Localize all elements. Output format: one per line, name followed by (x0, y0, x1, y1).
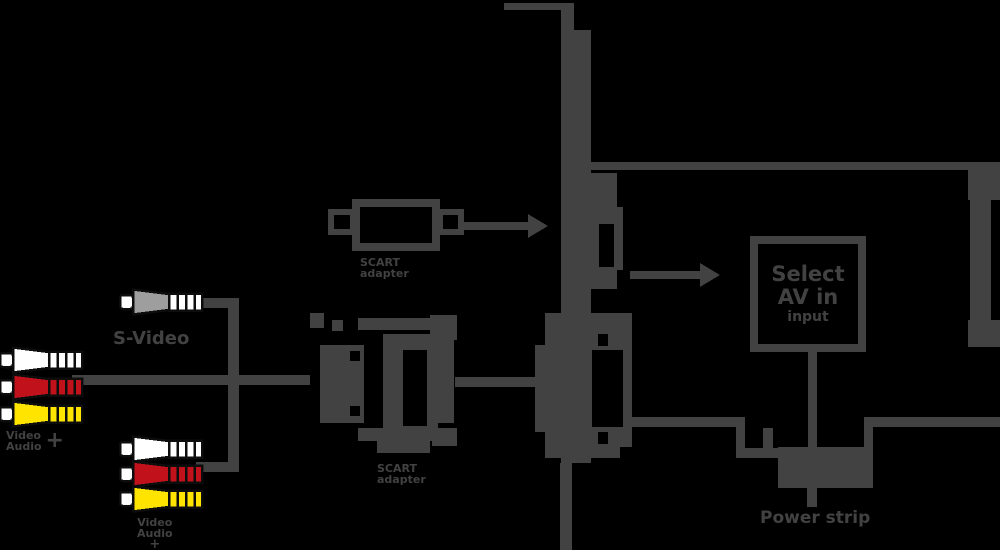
label-power-strip: Power strip (760, 510, 870, 527)
side-tab-left (331, 212, 353, 232)
plug-cone (133, 437, 169, 462)
upper-socket-bump (616, 207, 623, 270)
lower-socket-slot (592, 350, 623, 427)
lower-socket-screw-top (598, 334, 608, 346)
osd-line2: AV in (778, 286, 839, 309)
wire-right-horizontal (873, 417, 1000, 427)
arrow2-head-icon (700, 263, 720, 287)
label-scart-side: SCART adapter (360, 257, 409, 279)
plug-tip (120, 467, 133, 481)
wire-step-v3 (763, 428, 773, 448)
label-scart-side-line2: adapter (360, 268, 409, 279)
wire-main (72, 375, 310, 385)
rca-plug-red-left (0, 375, 82, 400)
plug-cone (13, 375, 49, 400)
adapter-bottom-bar (358, 428, 433, 441)
osd-line3: input (787, 309, 828, 326)
label-scart-front-line2: adapter (377, 474, 426, 485)
rca-plug-red-bottom (120, 462, 202, 487)
label-source2: Video Audio + (137, 517, 173, 550)
adapter-right-side (438, 340, 454, 423)
upper-socket (591, 173, 623, 289)
rca-plug-white-bottom (120, 437, 202, 462)
adapter-face-slot (403, 350, 427, 426)
wall-outlet (968, 168, 1000, 347)
plug-cone (133, 462, 169, 487)
wire-adapter-to-socket (455, 377, 537, 387)
scart-adapter-front (310, 313, 457, 453)
adapter-left-foot (327, 398, 344, 418)
lower-socket-foot (545, 447, 620, 458)
lower-socket (535, 313, 632, 458)
power-strip (778, 447, 873, 507)
plug-tip (120, 295, 133, 309)
side-tab-right (440, 212, 461, 232)
tv-panel (560, 30, 591, 550)
arrow2-line (630, 271, 702, 279)
plug-tip (0, 380, 13, 394)
adapter-screw-top (350, 351, 360, 361)
wire-osd-down (808, 350, 817, 448)
select-input-arrow (630, 263, 720, 287)
osd-line1: Select (771, 263, 844, 286)
label-scart-front: SCART adapter (377, 463, 426, 485)
wire-step-h2 (736, 448, 783, 458)
label-source1-audio: Audio (6, 441, 42, 452)
connection-diagram: Video Audio + S-Video Video Audio + SCAR… (0, 0, 1000, 550)
scart-adapter-side (331, 203, 461, 247)
adapter-corner (310, 313, 324, 328)
label-source1: Video Audio + (6, 430, 64, 452)
wall-outlet-top (968, 168, 1000, 200)
wire-right-vertical (864, 417, 873, 448)
adapter-bottom-lip (377, 441, 430, 453)
plug-cone (13, 402, 49, 427)
tv-panel-bottom-line (560, 463, 572, 550)
plug-cone (13, 348, 49, 373)
lower-socket-bottom (545, 432, 632, 447)
lower-socket-screw-bottom (598, 432, 608, 444)
wire-top-vertical (561, 3, 574, 33)
adapter-screw-bottom (350, 406, 360, 416)
rca-plug-white-left (0, 348, 82, 373)
svideo-plug (120, 290, 202, 315)
rca-plug-yellow-left (0, 402, 82, 427)
arrow1-line (462, 222, 530, 230)
plug-tip (0, 353, 13, 367)
wire-antenna (591, 162, 1000, 170)
power-strip-stem (807, 488, 817, 507)
wall-outlet-bar (970, 200, 991, 320)
adapter-top-bar (358, 318, 434, 330)
plus-icon: + (46, 430, 64, 452)
wire-junction-vertical (228, 298, 239, 472)
wall-outlet-bottom (968, 320, 1000, 347)
side-body (356, 203, 436, 247)
tv-osd-box: Select AV in input (750, 236, 866, 352)
plug-cone (133, 487, 169, 512)
upper-socket-slot (599, 224, 614, 267)
plug-tip (120, 442, 133, 456)
plug-tip (120, 492, 133, 506)
wire-step-h1 (623, 417, 745, 427)
plug-tip (0, 407, 13, 421)
adapter-nub (332, 320, 343, 331)
adapter-bottom-right (432, 428, 457, 446)
plug-cone (133, 290, 169, 315)
lower-socket-top (545, 313, 632, 347)
power-strip-body (778, 447, 873, 488)
insert-arrow (462, 214, 548, 238)
rca-plug-yellow-bottom (120, 487, 202, 512)
arrow1-head-icon (528, 214, 548, 238)
label-svideo: S-Video (113, 330, 189, 348)
